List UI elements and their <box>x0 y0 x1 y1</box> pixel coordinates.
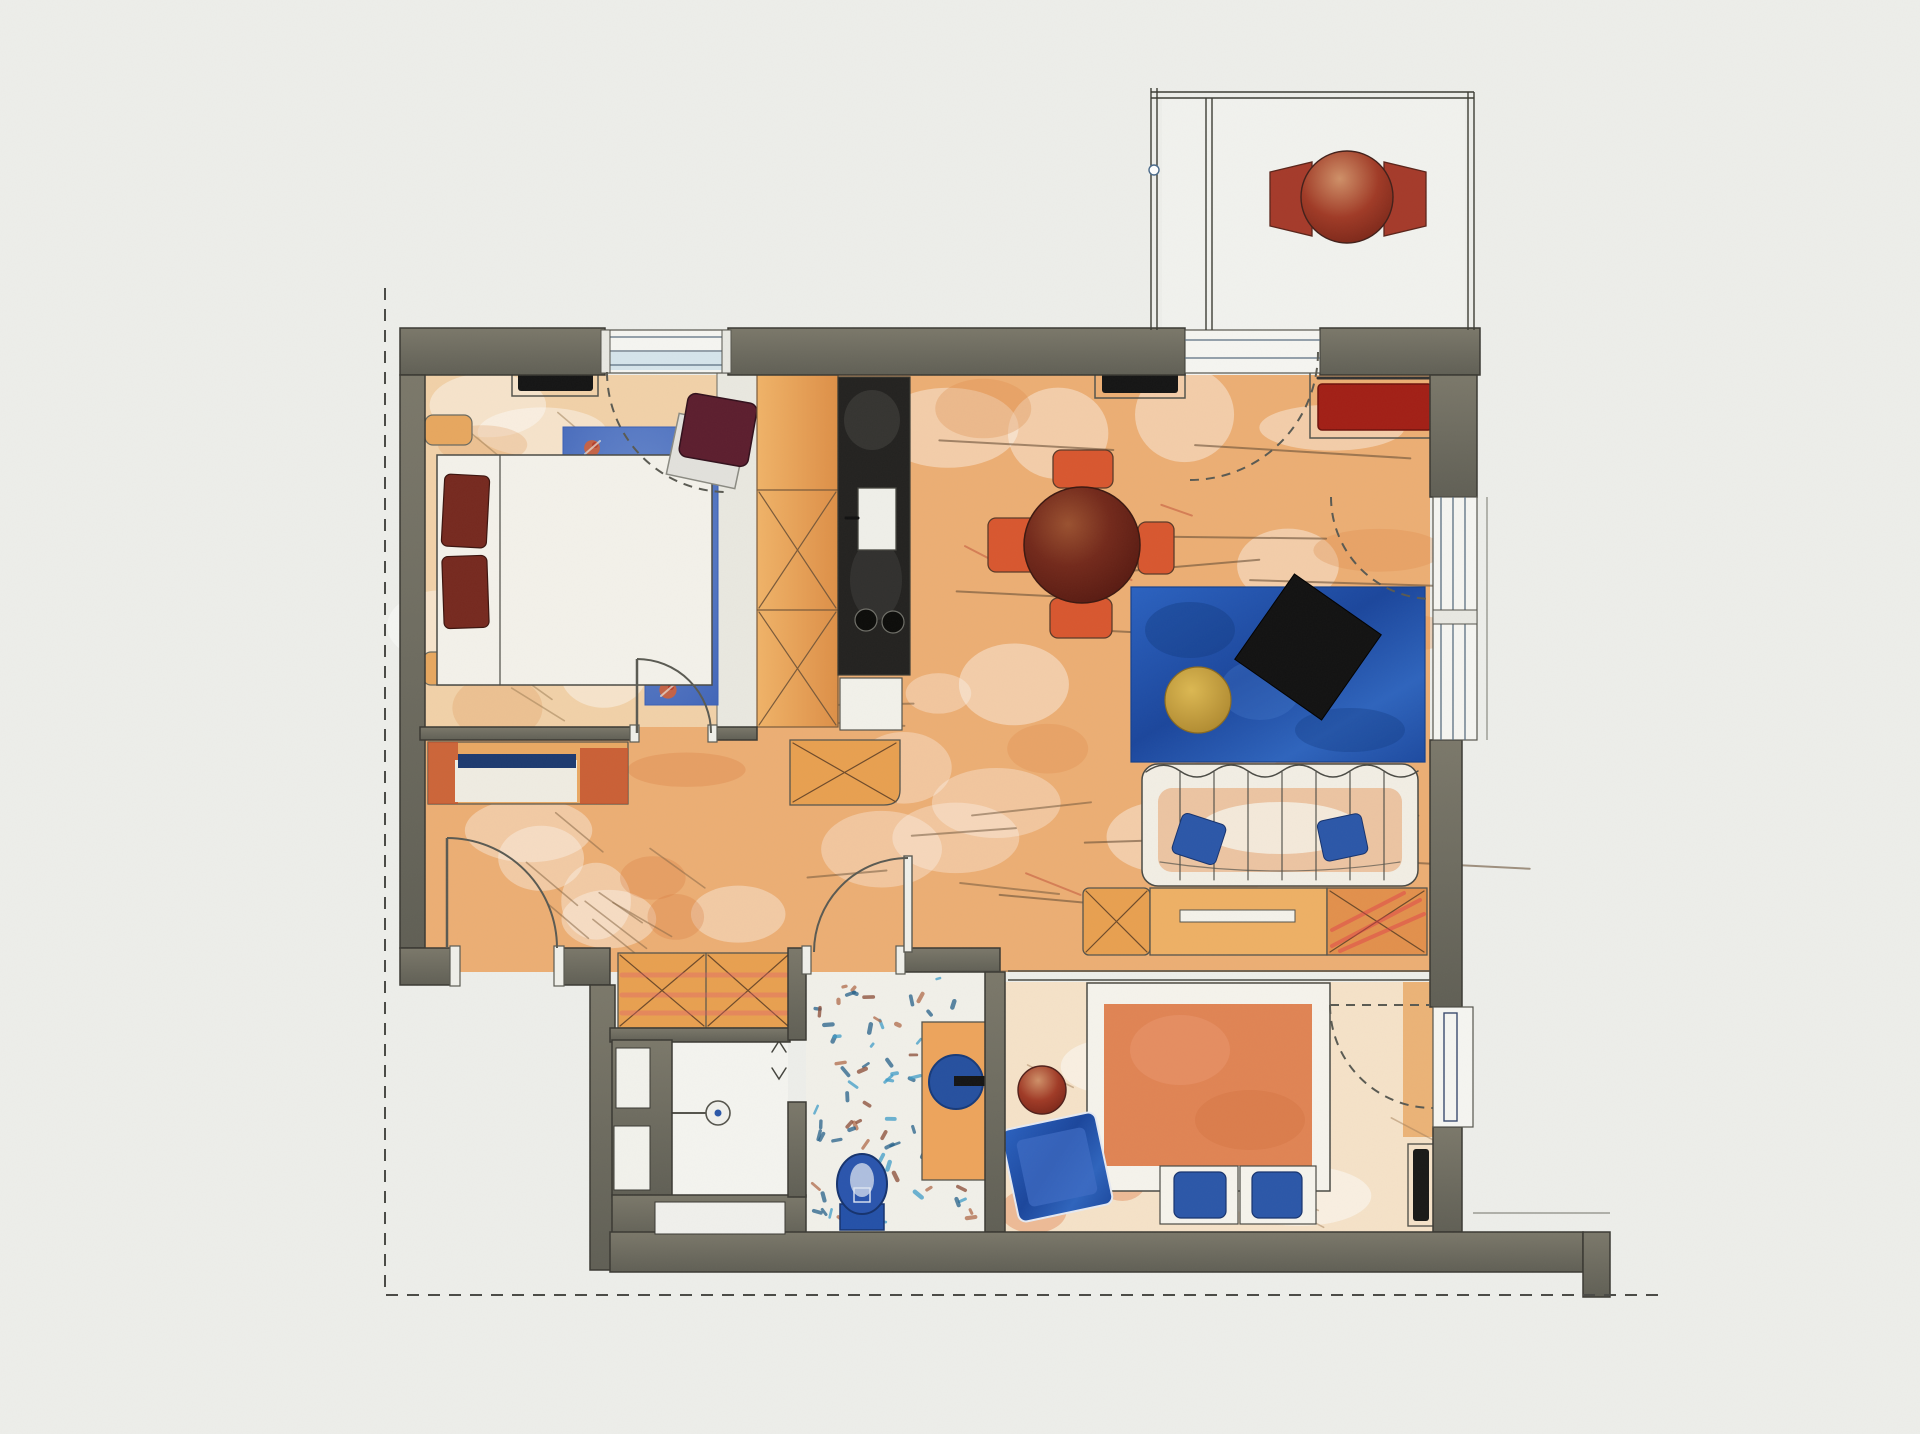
floor-plan-drawing <box>0 0 1920 1434</box>
paper-grain <box>0 0 1920 1434</box>
floor-plan-scan <box>0 0 1920 1434</box>
